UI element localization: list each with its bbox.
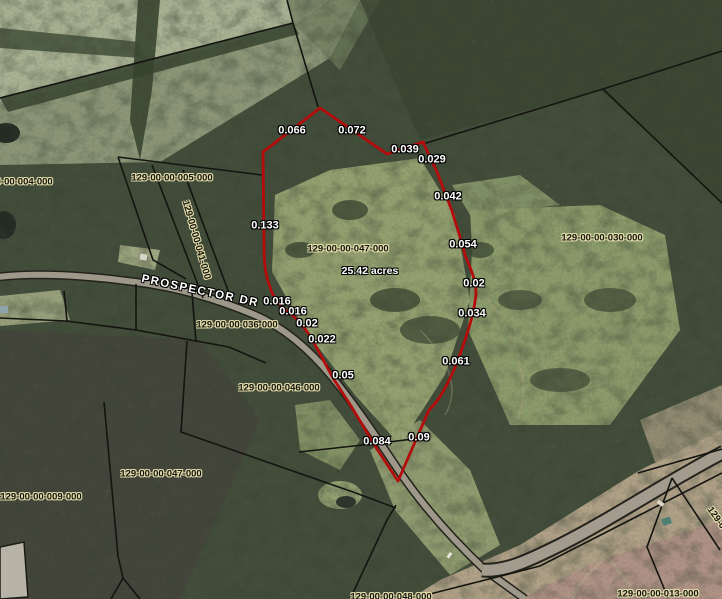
building bbox=[0, 542, 28, 599]
house bbox=[0, 306, 8, 313]
map-canvas[interactable]: 0.066 0.072 0.039 0.029 0.042 0.054 0.02… bbox=[0, 0, 722, 599]
house bbox=[140, 254, 148, 261]
satellite-imagery bbox=[0, 0, 722, 599]
